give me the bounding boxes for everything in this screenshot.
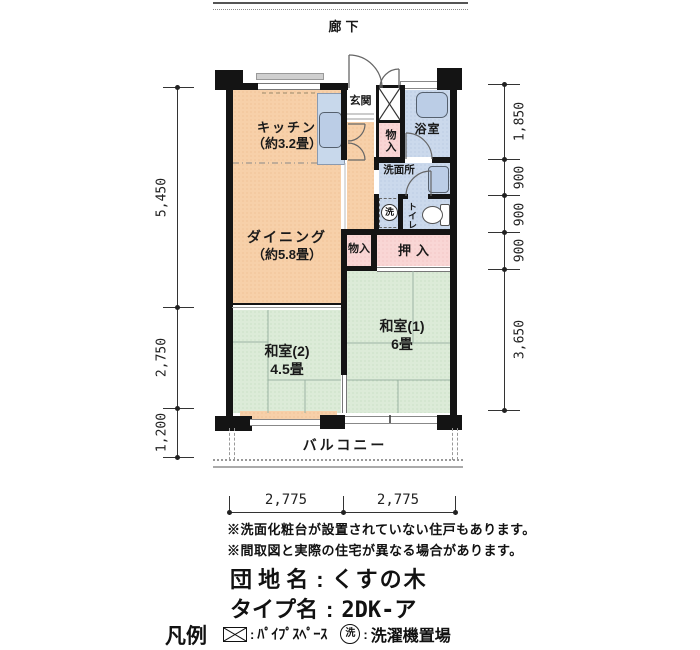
washitsu2-name: 和室(2) xyxy=(233,343,341,361)
dim-left-5450: 5,450 xyxy=(155,168,170,228)
kitchen-window-sill xyxy=(256,73,324,80)
legend-washer-label: 洗濯機置場 xyxy=(371,622,451,646)
dim-right-dot-3 xyxy=(502,193,507,198)
legend-title: 凡例 xyxy=(165,620,207,650)
toilet-label: トイレ xyxy=(403,199,417,232)
dining-washitsu2-track xyxy=(232,307,341,308)
rooms-fusuma xyxy=(342,375,347,413)
pipe-space-legend-icon xyxy=(223,627,247,642)
dining-name: ダイニング xyxy=(233,229,341,247)
balcony-edge-dotted xyxy=(213,459,463,461)
wall-rooms-divider xyxy=(341,271,347,375)
balcony-label: バルコニー xyxy=(290,437,400,455)
wall-washroom-toilet-b xyxy=(428,194,457,199)
washbasin xyxy=(428,166,449,193)
washitsu1-name: 和室(1) xyxy=(352,318,452,336)
kitchen-window xyxy=(258,83,320,90)
dim-right-1850: 1,850 xyxy=(513,92,528,152)
corridor-line-outer xyxy=(213,2,468,4)
bathtub xyxy=(416,92,448,118)
dining-label: ダイニング （約5.8畳） xyxy=(233,229,341,263)
dim-bottom-dot-2 xyxy=(341,510,346,515)
genkan-label: 玄関 xyxy=(347,95,374,109)
dim-right-dot-5 xyxy=(502,267,507,272)
hall-strip xyxy=(347,122,374,229)
dim-right-dot-6 xyxy=(502,408,507,413)
legend-colon-1: : xyxy=(250,627,254,642)
pillar-top-left xyxy=(215,70,243,90)
dim-left-dot-2 xyxy=(175,305,180,310)
closet-center-label: 物入 xyxy=(347,243,371,257)
wall-under-bath-right xyxy=(432,157,457,163)
estate-name-label: 団 地 名 xyxy=(230,567,308,592)
corridor-label: 廊下 xyxy=(313,19,378,35)
kitchen-label: キッチン （約3.2畳） xyxy=(233,120,341,153)
type-name-row: タイプ名:2DK-ア xyxy=(230,592,416,624)
dim-right-dot-1 xyxy=(502,82,507,87)
pipe-space-icon xyxy=(376,85,403,123)
dim-left-2750: 2,750 xyxy=(155,328,170,388)
floorplan-page: 廊下 洗 xyxy=(0,0,700,650)
wall-left xyxy=(226,83,233,420)
corridor-line-inner xyxy=(213,9,468,10)
estate-name-value: くすの木 xyxy=(332,567,428,592)
bath-window xyxy=(400,81,440,89)
oshiire-fusuma xyxy=(377,267,450,272)
kitchen-name: キッチン xyxy=(233,120,341,136)
washitsu1-label: 和室(1) 6畳 xyxy=(352,318,452,353)
dim-left-1200: 1,200 xyxy=(155,403,170,463)
dim-right-dot-2 xyxy=(502,157,507,162)
estate-name-sep: : xyxy=(316,567,323,592)
note-line-2: ※間取図と実際の住宅が異なる場合があります。 xyxy=(227,540,523,559)
dim-right-line xyxy=(504,84,505,410)
washer-icon: 洗 xyxy=(381,204,398,221)
closet-upper-label: 物入 xyxy=(378,124,396,158)
oshiire-label: 押入 xyxy=(377,243,450,259)
dim-left-line xyxy=(177,87,178,457)
balcony-rail-left xyxy=(229,428,235,460)
balcony-rail-right xyxy=(452,428,458,460)
toilet-bowl xyxy=(422,206,443,224)
estate-name-row: 団 地 名:くすの木 xyxy=(230,562,428,594)
dim-right-900c: 900 xyxy=(513,221,528,281)
dim-bottom-dot-3 xyxy=(453,510,458,515)
dim-left-dot-1 xyxy=(175,85,180,90)
balcony-window-left xyxy=(250,419,320,426)
dim-bottom-dot-1 xyxy=(227,510,232,515)
washroom-label: 洗面所 xyxy=(379,164,419,177)
bath-label: 浴室 xyxy=(405,122,450,137)
washitsu2-label: 和室(2) 4.5畳 xyxy=(233,343,341,378)
wall-dining-washitsu2 xyxy=(232,303,341,305)
dim-right-3650: 3,650 xyxy=(513,310,528,370)
type-name-value: 2DK-ア xyxy=(341,598,416,623)
legend-colon-2: : xyxy=(363,627,367,642)
pillar-bottom-right xyxy=(437,415,462,430)
type-name-sep: : xyxy=(326,597,333,622)
pillar-bottom-center xyxy=(320,415,345,429)
legend-pipe-label: ﾊﾟｲﾌﾟｽﾍﾟｰｽ xyxy=(257,624,327,644)
dim-left-dot-3 xyxy=(175,406,180,411)
dim-left-dot-4 xyxy=(175,455,180,460)
washitsu2-size: 4.5畳 xyxy=(233,361,341,379)
kitchen-size: （約3.2畳） xyxy=(233,136,341,152)
wall-bath-left xyxy=(400,85,405,157)
dim-bottom-2775b: 2,775 xyxy=(368,492,428,508)
dim-right-dot-4 xyxy=(502,230,507,235)
balcony-edge-solid xyxy=(213,466,463,468)
balcony-window-right xyxy=(345,416,437,424)
wall-above-closet-row xyxy=(341,229,457,235)
legend-row: :ﾊﾟｲﾌﾟｽﾍﾟｰｽ 洗:洗濯機置場 xyxy=(223,622,451,646)
note-line-1: ※洗面化粧台が設置されていない住戸もあります。 xyxy=(227,519,536,538)
dining-size: （約5.8畳） xyxy=(233,247,341,263)
washitsu1-size: 6畳 xyxy=(352,336,452,354)
type-name-label: タイプ名 xyxy=(230,597,318,622)
washer-legend-icon: 洗 xyxy=(340,624,360,644)
dim-bottom-2775a: 2,775 xyxy=(256,492,316,508)
wall-right xyxy=(450,83,457,420)
pillar-top-right xyxy=(437,68,462,90)
